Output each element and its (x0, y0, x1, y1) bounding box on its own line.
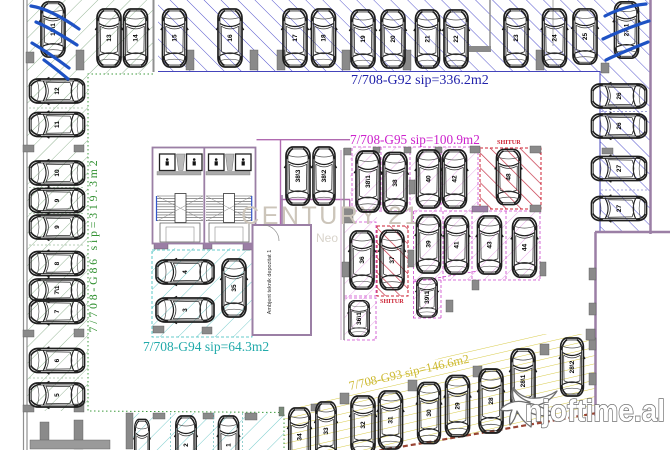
svg-text:43: 43 (487, 241, 494, 249)
svg-text:23: 23 (513, 34, 520, 42)
svg-text:7/708-G95 sip=100.9m2: 7/708-G95 sip=100.9m2 (350, 132, 480, 147)
svg-text:41: 41 (454, 241, 461, 249)
svg-text:7/708-G94 sip=64.3m2: 7/708-G94 sip=64.3m2 (143, 339, 269, 354)
svg-text:15: 15 (172, 34, 179, 42)
svg-text:7\1: 7\1 (54, 285, 61, 294)
svg-text:33: 33 (323, 427, 330, 435)
svg-text:28\2: 28\2 (569, 360, 576, 373)
svg-text:28\1: 28\1 (520, 374, 527, 387)
svg-text:25: 25 (582, 33, 589, 41)
svg-text:19: 19 (360, 35, 367, 43)
svg-text:9: 9 (54, 198, 61, 202)
svg-text:26: 26 (616, 122, 623, 130)
svg-text:34: 34 (297, 433, 304, 441)
svg-text:2: 2 (183, 443, 190, 447)
svg-text:7: 7 (54, 309, 61, 313)
svg-text:njoftime.al: njoftime.al (525, 393, 665, 428)
svg-text:22: 22 (453, 35, 460, 43)
svg-text:48: 48 (506, 173, 513, 181)
svg-text:11: 11 (54, 121, 61, 128)
svg-text:10: 10 (54, 169, 61, 177)
svg-text:38\2: 38\2 (321, 169, 328, 182)
svg-text:7/708-G92 sip=336.2m2: 7/708-G92 sip=336.2m2 (351, 73, 489, 88)
svg-text:32: 32 (360, 421, 367, 429)
svg-text:36: 36 (359, 256, 366, 264)
svg-text:36\1: 36\1 (356, 312, 363, 325)
svg-text:18: 18 (321, 34, 328, 42)
svg-text:21: 21 (425, 35, 432, 43)
svg-text:17: 17 (292, 34, 299, 42)
svg-text:5: 5 (54, 393, 61, 397)
svg-text:39: 39 (426, 240, 433, 248)
svg-text:SHITUR: SHITUR (380, 298, 404, 305)
svg-text:40: 40 (426, 175, 433, 183)
svg-text:28: 28 (488, 397, 495, 405)
svg-text:44: 44 (522, 244, 529, 252)
svg-text:8: 8 (54, 261, 61, 265)
svg-text:31: 31 (388, 416, 395, 424)
svg-text:3: 3 (182, 308, 189, 312)
svg-text:38\1: 38\1 (365, 175, 372, 188)
svg-text:27: 27 (616, 165, 623, 173)
svg-text:42: 42 (452, 175, 459, 183)
svg-text:20: 20 (390, 35, 397, 43)
svg-text:14: 14 (133, 34, 140, 42)
svg-text:Neo: Neo (316, 231, 338, 245)
svg-text:12: 12 (54, 87, 61, 95)
svg-text:9: 9 (54, 225, 61, 229)
svg-text:27: 27 (616, 205, 623, 213)
svg-text:6: 6 (54, 358, 61, 362)
svg-text:37: 37 (389, 256, 396, 264)
svg-text:35: 35 (231, 284, 238, 292)
svg-text:CENTURY 21: CENTURY 21 (241, 202, 421, 230)
svg-text:29: 29 (455, 402, 462, 410)
svg-text:38\3: 38\3 (295, 169, 302, 182)
svg-text:30: 30 (426, 409, 433, 417)
svg-text:38: 38 (392, 179, 399, 187)
svg-text:4: 4 (182, 270, 189, 274)
svg-text:24: 24 (552, 34, 559, 42)
svg-text:Ambjent teknik depozitat 1: Ambjent teknik depozitat 1 (267, 250, 273, 315)
svg-text:16: 16 (227, 34, 234, 42)
svg-text:39\1: 39\1 (424, 291, 431, 304)
svg-text:26: 26 (616, 92, 623, 100)
svg-text:7/708-G86 sip=319.3m2: 7/708-G86 sip=319.3m2 (86, 158, 100, 333)
svg-text:1: 1 (226, 443, 233, 447)
svg-text:SHITUR: SHITUR (497, 139, 521, 146)
svg-text:13: 13 (106, 34, 113, 42)
